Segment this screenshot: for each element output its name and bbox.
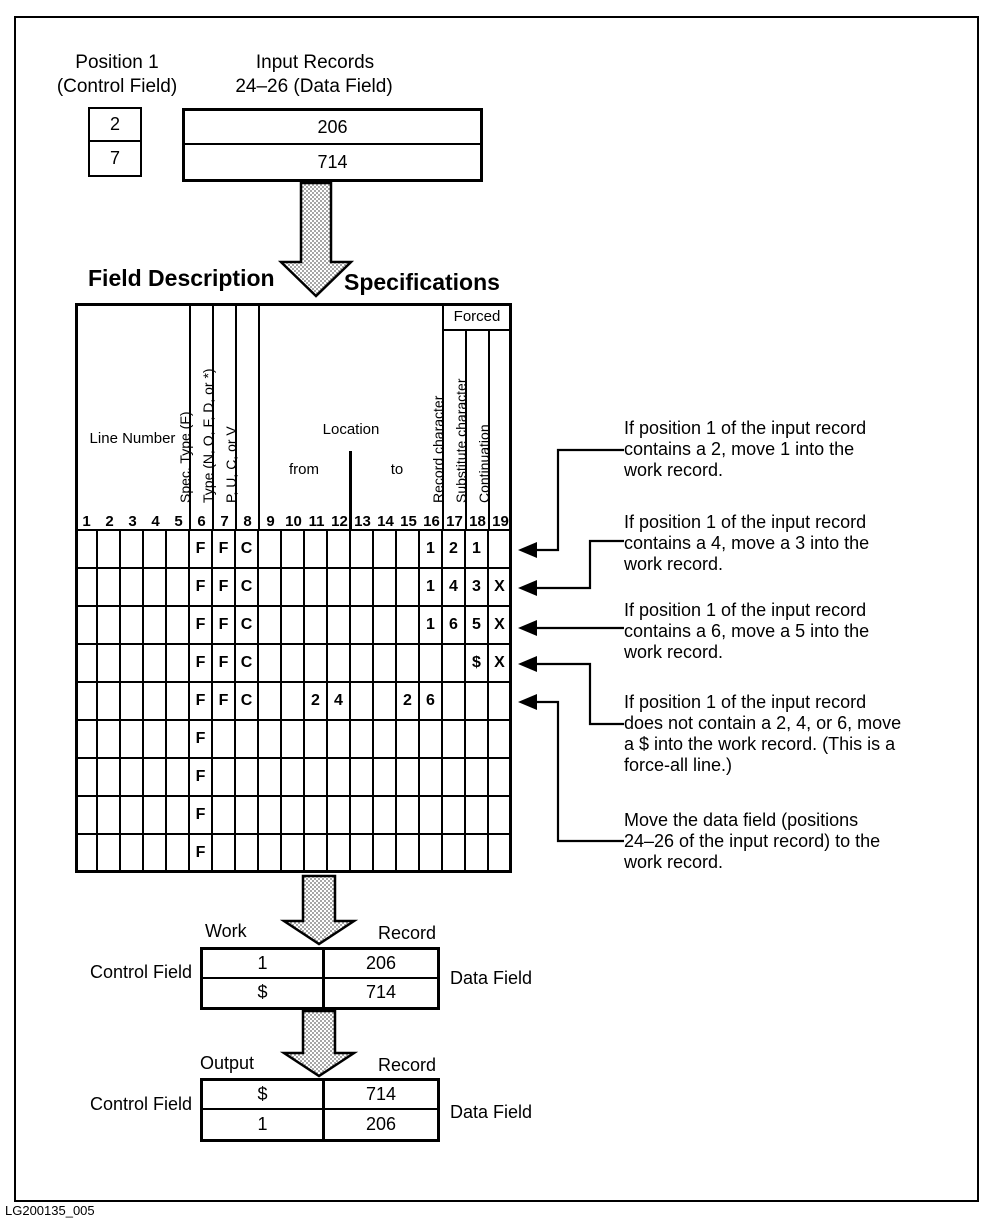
annotation-line: a $ into the work record. (This is a: [624, 734, 960, 755]
input-control-field-box: 2 7: [88, 107, 142, 177]
annotation-line: contains a 6, move a 5 into the: [624, 621, 960, 642]
input-records-label-line2: 24–26 (Data Field): [228, 76, 400, 98]
data-field-value: 206: [185, 111, 480, 145]
annotation-line: If position 1 of the input record: [624, 512, 960, 533]
work-data-value: 714: [325, 979, 437, 1008]
work-control-value: $: [203, 979, 325, 1008]
work-record-box: 1 206 $ 714: [200, 947, 440, 1010]
figure-page: Position 1 (Control Field) Input Records…: [0, 0, 994, 1223]
annotation-line: work record.: [624, 852, 960, 873]
work-control-value: 1: [203, 950, 325, 979]
output-data-field-label: Data Field: [450, 1102, 532, 1123]
grid-outline: [75, 303, 512, 873]
annotation-contains-4: If position 1 of the input recordcontain…: [624, 512, 960, 575]
input-data-field-box: 206 714: [182, 108, 483, 182]
figure-id: LG200135_005: [5, 1203, 95, 1218]
control-field-value: 7: [90, 142, 140, 175]
input-records-label-line1: Input Records: [240, 52, 390, 74]
annotation-line: contains a 4, move a 3 into the: [624, 533, 960, 554]
output-control-value: 1: [203, 1110, 325, 1139]
annotation-contains-6: If position 1 of the input recordcontain…: [624, 600, 960, 663]
data-field-value: 714: [185, 145, 480, 179]
annotation-line: force-all line.): [624, 755, 960, 776]
control-field-value: 2: [90, 109, 140, 142]
output-data-value: 206: [325, 1110, 437, 1139]
annotation-force-all: If position 1 of the input recorddoes no…: [624, 692, 960, 776]
output-record-label: Record: [378, 1055, 436, 1076]
annotation-line: 24–26 of the input record) to the: [624, 831, 960, 852]
grid-title-left: Field Description: [88, 265, 275, 292]
annotation-line: does not contain a 2, 4, or 6, move: [624, 713, 960, 734]
position-label-line1: Position 1: [58, 52, 176, 74]
annotation-line: If position 1 of the input record: [624, 600, 960, 621]
output-control-field-label: Control Field: [85, 1094, 192, 1115]
annotation-line: If position 1 of the input record: [624, 692, 960, 713]
annotation-contains-2: If position 1 of the input recordcontain…: [624, 418, 960, 481]
work-label: Work: [205, 921, 247, 942]
spec-grid: Forced Line Number Location from to Spec…: [75, 303, 512, 873]
annotation-line: work record.: [624, 554, 960, 575]
output-label: Output: [200, 1053, 254, 1074]
work-control-field-label: Control Field: [85, 962, 192, 983]
annotation-move-data-field: Move the data field (positions24–26 of t…: [624, 810, 960, 873]
output-data-value: 714: [325, 1081, 437, 1110]
grid-title-right: Specifications: [344, 269, 500, 296]
annotation-line: contains a 2, move 1 into the: [624, 439, 960, 460]
output-record-box: $ 714 1 206: [200, 1078, 440, 1142]
work-data-value: 206: [325, 950, 437, 979]
annotation-line: work record.: [624, 642, 960, 663]
output-control-value: $: [203, 1081, 325, 1110]
annotation-line: Move the data field (positions: [624, 810, 960, 831]
annotation-line: If position 1 of the input record: [624, 418, 960, 439]
annotation-line: work record.: [624, 460, 960, 481]
work-record-label: Record: [378, 923, 436, 944]
work-data-field-label: Data Field: [450, 968, 532, 989]
position-label-line2: (Control Field): [48, 76, 186, 98]
